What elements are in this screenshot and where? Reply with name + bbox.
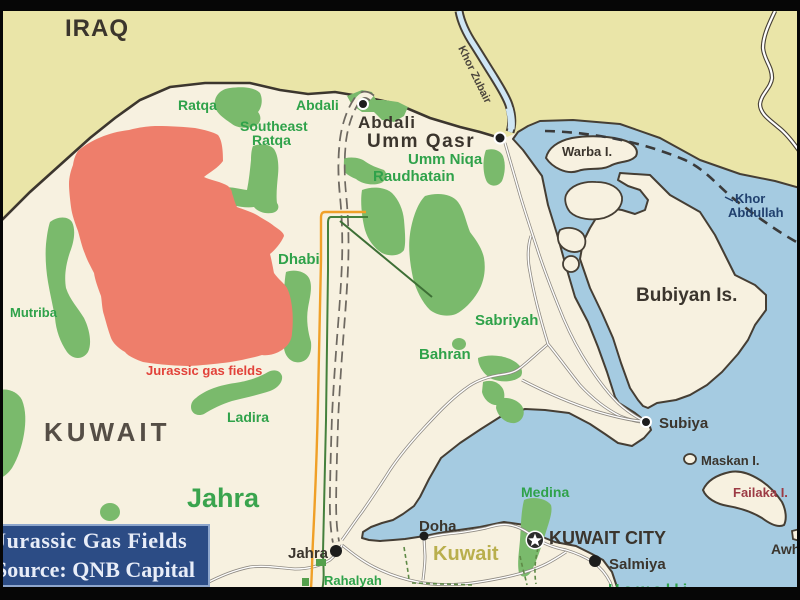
svg-text:Ratqa: Ratqa	[252, 132, 291, 148]
svg-text:Raudhatain: Raudhatain	[373, 168, 455, 185]
svg-text:Sabriyah: Sabriyah	[475, 312, 538, 329]
svg-text:Salmiya: Salmiya	[609, 556, 666, 573]
svg-text:Source: QNB Capital: Source: QNB Capital	[0, 557, 195, 582]
svg-text:Awhah: Awhah	[771, 541, 800, 557]
svg-text:Rahalyah: Rahalyah	[324, 573, 382, 588]
svg-text:Mutriba: Mutriba	[10, 305, 58, 320]
svg-text:KUWAIT: KUWAIT	[44, 417, 171, 447]
svg-text:Jahra: Jahra	[187, 483, 260, 513]
svg-text:Abdali: Abdali	[358, 113, 416, 132]
svg-text:Khor: Khor	[735, 191, 765, 206]
svg-text:Jurassic gas fields: Jurassic gas fields	[146, 363, 262, 378]
svg-text:Umm Qasr: Umm Qasr	[367, 131, 475, 152]
svg-text:Warba I.: Warba I.	[562, 144, 612, 159]
svg-text:KUWAIT CITY: KUWAIT CITY	[549, 528, 666, 548]
svg-text:Ratqa: Ratqa	[178, 97, 217, 113]
svg-text:Ladira: Ladira	[227, 409, 269, 425]
svg-text:Failaka I.: Failaka I.	[733, 485, 788, 500]
svg-text:Dhabi: Dhabi	[278, 251, 320, 268]
svg-text:Bubiyan Is.: Bubiyan Is.	[636, 285, 737, 306]
svg-text:IRAQ: IRAQ	[65, 15, 129, 42]
svg-text:Umm Niqa: Umm Niqa	[408, 151, 483, 168]
svg-text:Jurassic Gas Fields: Jurassic Gas Fields	[0, 528, 187, 553]
svg-text:Abdullah: Abdullah	[728, 205, 784, 220]
svg-text:Bahran: Bahran	[419, 346, 471, 363]
svg-text:Jahra: Jahra	[288, 545, 329, 562]
svg-text:Medina: Medina	[521, 484, 569, 500]
svg-text:Abdali: Abdali	[296, 97, 339, 113]
svg-text:Subiya: Subiya	[659, 415, 709, 432]
svg-text:Doha: Doha	[419, 518, 457, 535]
svg-text:Kuwait: Kuwait	[433, 543, 499, 565]
svg-text:Maskan I.: Maskan I.	[701, 453, 760, 468]
